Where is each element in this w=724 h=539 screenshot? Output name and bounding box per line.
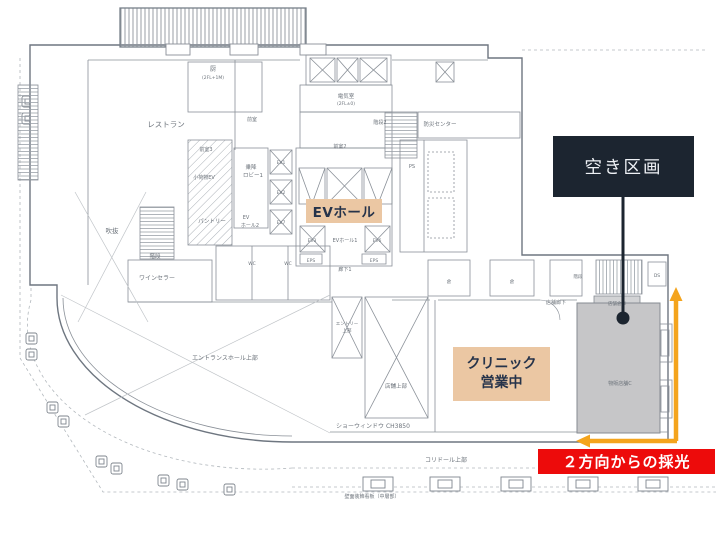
plan-label: 物販店舗C: [608, 380, 632, 387]
plan-label: (2FL±0): [337, 101, 355, 107]
vacant-section-callout: 空き区画: [553, 136, 694, 197]
plan-label: 店舗廊下: [546, 299, 566, 306]
plan-label: DS: [654, 273, 660, 279]
plan-label: 前室2: [333, 143, 346, 150]
plan-label: EV2: [277, 190, 286, 196]
plan-label: 小荷物EV: [193, 174, 215, 181]
clinic-label-line2: 営業中: [481, 374, 523, 393]
plan-label: EPS: [307, 258, 316, 264]
ev-hall-highlight: EVホール: [306, 199, 382, 223]
plan-label: EPS: [370, 258, 379, 264]
plan-label: WC: [248, 261, 256, 267]
plan-label: WC: [284, 261, 292, 267]
plan-label: 上部: [343, 327, 352, 334]
plan-label: エントランスホール上部: [192, 354, 258, 362]
plan-label: ホール2: [241, 223, 259, 229]
plan-label: 階段2: [373, 119, 386, 126]
plan-label: (2FL+1M): [202, 75, 224, 81]
floor-plan-page: レストラン厨(2FL+1M)前室前室3前室2吹抜階段ワインセラー小荷物EVパント…: [0, 0, 724, 539]
plan-label: EV1: [277, 160, 286, 166]
plan-label: コリドール上部: [425, 456, 467, 464]
plan-label: ワインセラー: [139, 275, 175, 282]
plan-label: PS: [409, 164, 415, 170]
plan-label: 店舗上部: [385, 382, 408, 390]
plan-label: EV3: [308, 238, 317, 244]
clinic-highlight: クリニック 営業中: [453, 347, 550, 401]
clinic-label-line1: クリニック: [467, 355, 537, 374]
plan-label: 階段: [574, 273, 583, 280]
daylight-note: ２方向からの採光: [538, 449, 715, 474]
plan-label: EV: [243, 215, 250, 221]
plan-label: EVホール1: [333, 238, 358, 244]
daylight-note-label: ２方向からの採光: [562, 451, 690, 472]
plan-label: エントリー: [336, 321, 359, 327]
plan-label: 乗降: [245, 163, 257, 171]
plan-label: 防災センター: [423, 120, 456, 128]
vacant-location-dot: [617, 312, 630, 325]
plan-label: EV6: [373, 238, 382, 244]
plan-label: ショーウィンドウ CH3850: [336, 422, 410, 430]
plan-label: 倉: [447, 278, 452, 285]
plan-label: ロビー1: [243, 171, 263, 179]
vacant-section-label: 空き区画: [585, 154, 663, 179]
plan-label: レストラン: [147, 120, 185, 129]
plan-label: EV7: [277, 220, 286, 226]
plan-label: 電気室: [338, 92, 355, 100]
plan-label: 厨: [210, 66, 216, 73]
plan-label: 階段: [149, 252, 161, 260]
plan-label: 前室3: [199, 146, 212, 153]
plan-label: 壁面装飾看板（中層部）: [344, 493, 399, 500]
plan-label: 廊下1: [338, 266, 351, 273]
plan-label: 倉: [510, 278, 515, 285]
plan-label: 前室: [247, 116, 257, 123]
ev-hall-label: EVホール: [313, 201, 376, 221]
plan-label: パントリー: [198, 218, 226, 225]
plan-label: 吹抜: [106, 226, 120, 235]
